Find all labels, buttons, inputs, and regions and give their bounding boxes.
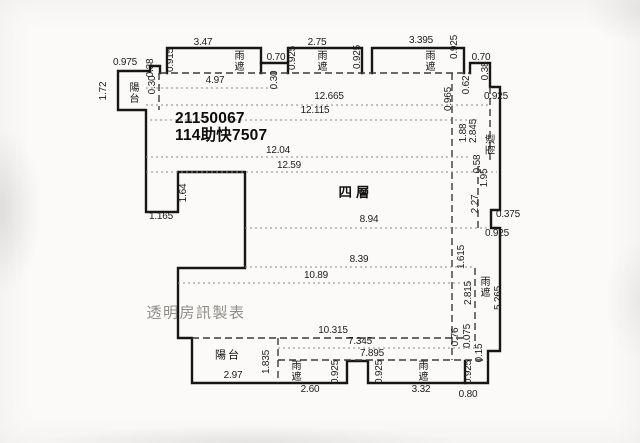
- dimension-label: 1.615: [457, 245, 467, 269]
- dimension-label: 2.97: [224, 371, 243, 381]
- main-outline-left: [118, 71, 465, 383]
- room-label: 雨遮: [232, 50, 242, 72]
- registration-number: 21150067: [175, 110, 267, 127]
- document-code: 114助快7507: [175, 127, 267, 144]
- room-label: 雨遮: [423, 50, 433, 72]
- room-label: 雨遮: [478, 276, 488, 298]
- dimension-label: 0.965: [444, 87, 454, 111]
- dimension-label: 0.925: [288, 46, 298, 70]
- dimension-label: 0.30: [148, 76, 158, 95]
- dimension-label: 2.815: [464, 281, 474, 305]
- rain-shelter-box-1: [167, 48, 261, 73]
- dimension-label: 2.60: [301, 385, 320, 395]
- room-label: 雨遮: [315, 50, 325, 72]
- room-label: 雨遮: [487, 133, 497, 155]
- dimension-label: 0.375: [496, 210, 520, 220]
- dimension-label: 0.38: [481, 62, 491, 81]
- dimension-label: 2.27: [471, 195, 481, 214]
- dimension-label: 7.345: [348, 337, 372, 347]
- dimension-label: 1.95: [480, 169, 490, 188]
- dimension-label: 12.59: [277, 161, 301, 171]
- dimension-label: 12.115: [301, 106, 330, 116]
- dimension-label: 3.32: [412, 385, 431, 395]
- dimension-label: 10.89: [304, 271, 328, 281]
- dimension-label: 0.30: [270, 71, 280, 90]
- dimension-label: 0.925: [464, 360, 474, 384]
- dimension-label: 1.835: [262, 350, 272, 374]
- room-label: 雨遮: [289, 360, 299, 382]
- dimension-label: 0.70: [267, 53, 286, 63]
- dimension-label: 10.315: [318, 326, 347, 336]
- dimension-label: 0.925: [450, 35, 460, 59]
- dimension-label: 12.04: [266, 146, 290, 156]
- dimension-label: 0.80: [459, 390, 478, 400]
- dimension-label: 2.75: [308, 38, 327, 48]
- dimension-label: 5.265: [494, 286, 504, 310]
- dimension-label: 0.76: [451, 328, 461, 347]
- dimension-label: 0.925: [485, 229, 509, 239]
- room-label: 陽台: [127, 82, 137, 104]
- watermark: 透明房訊製表: [146, 302, 245, 323]
- dimension-label: 0.925: [353, 45, 363, 69]
- floor-plan-page: 0.9751.72陽台0.380.300.9153.47雨遮4.970.700.…: [0, 0, 640, 443]
- dimension-label: 1.72: [99, 82, 109, 101]
- dimension-label: 1.165: [149, 212, 173, 222]
- dimension-label: 8.39: [350, 255, 369, 265]
- room-label: 陽台: [215, 351, 241, 362]
- dimension-label: 0.075: [463, 324, 473, 348]
- dimension-label: 2.845: [469, 119, 479, 143]
- dimension-label: 7.895: [360, 349, 384, 359]
- dimension-label: 0.62: [462, 76, 472, 95]
- room-label: 雨遮: [416, 360, 426, 382]
- dimension-label: 1.64: [179, 184, 189, 203]
- dimension-label: 0.915: [166, 48, 176, 72]
- dimension-label: 0.15: [475, 344, 485, 363]
- title-block: 21150067 114助快7507: [175, 110, 267, 144]
- dimension-label: 3.395: [409, 36, 433, 46]
- dimension-label: 0.925: [375, 360, 385, 384]
- dimension-label: 0.925: [484, 92, 508, 102]
- dimension-label: 8.94: [360, 215, 379, 225]
- dimension-label: 12.665: [314, 92, 343, 102]
- dimension-label: 3.47: [194, 38, 213, 48]
- dimension-label: 0.925: [331, 360, 341, 384]
- dimension-label: 4.97: [206, 76, 225, 86]
- dimension-label: 0.975: [113, 58, 137, 68]
- floor-label: 四層: [339, 181, 374, 201]
